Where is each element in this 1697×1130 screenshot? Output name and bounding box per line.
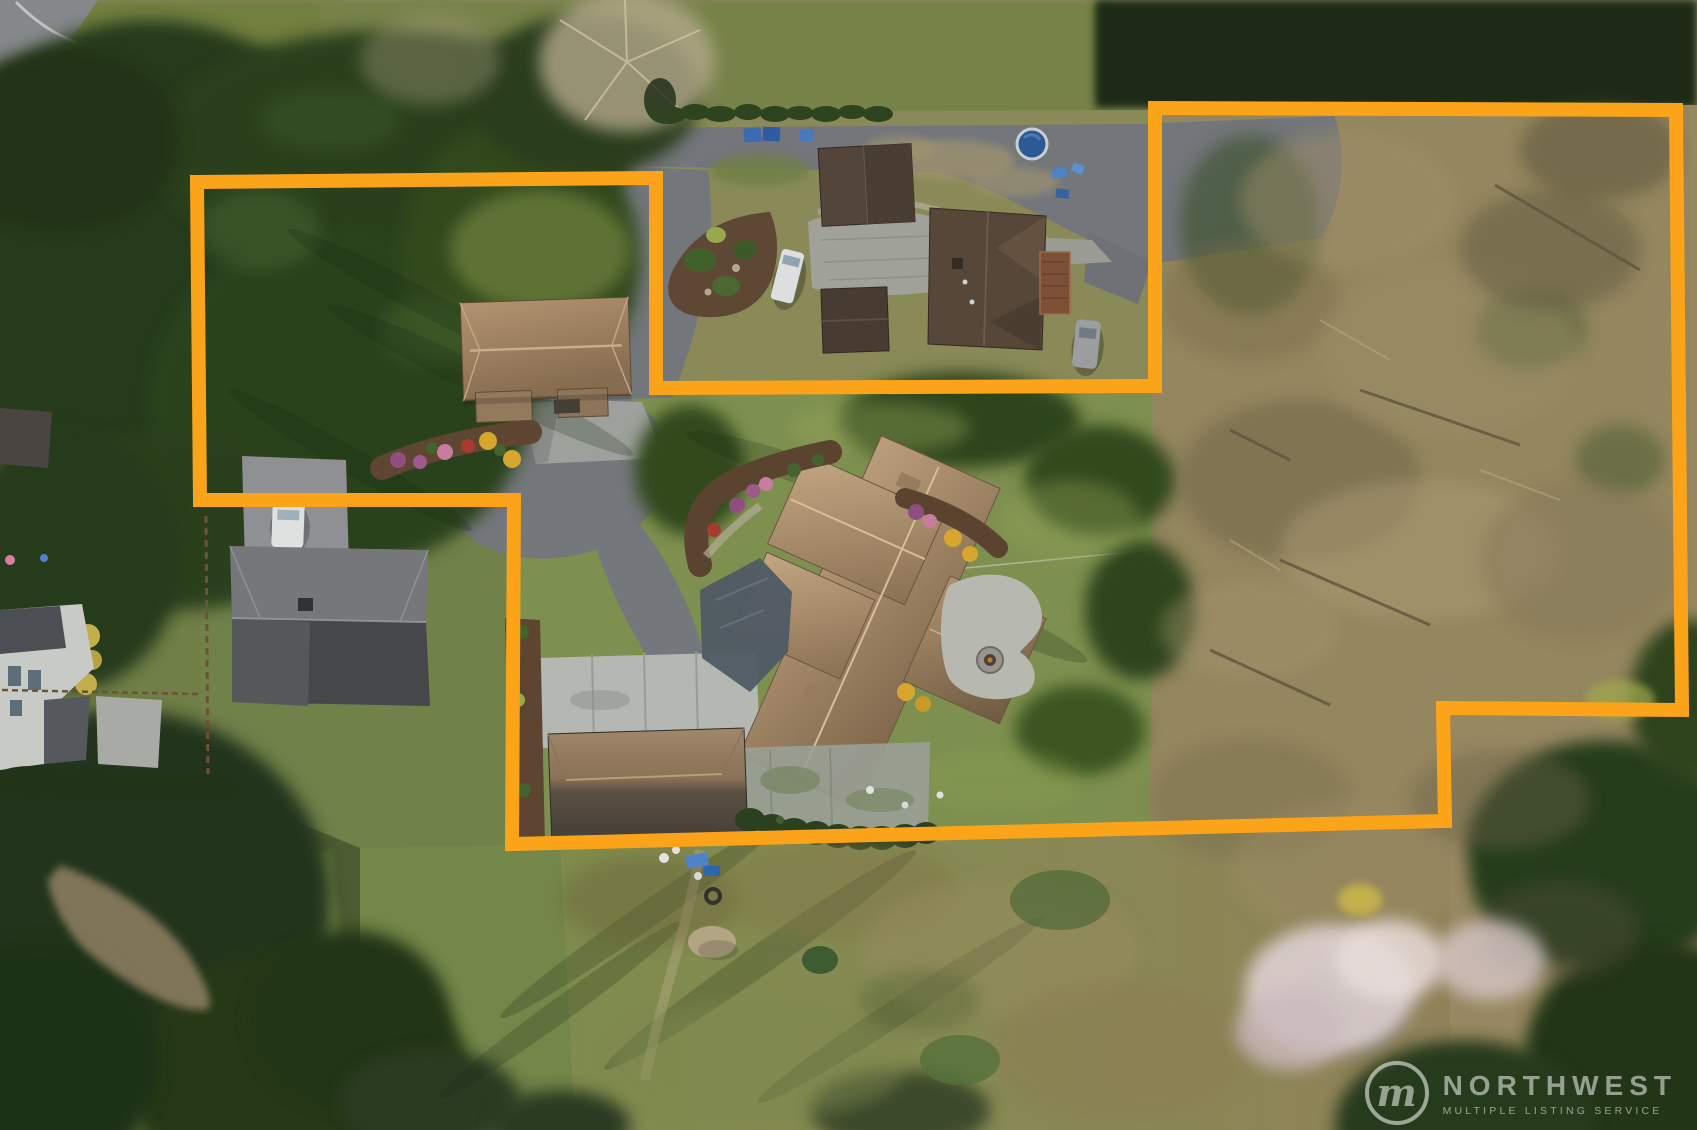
- mls-logo-icon: m: [1365, 1061, 1429, 1125]
- mls-watermark-text: NORTHWEST MULTIPLE LISTING SERVICE: [1443, 1070, 1677, 1117]
- wood-deck: [1040, 252, 1070, 314]
- neighbor-house: [928, 208, 1046, 350]
- mls-tagline: MULTIPLE LISTING SERVICE: [1443, 1105, 1677, 1117]
- roadside-shed: [0, 408, 52, 468]
- aerial-photo-canvas: [0, 0, 1697, 1130]
- carport: [818, 144, 915, 227]
- mls-watermark: m NORTHWEST MULTIPLE LISTING SERVICE: [1365, 1061, 1677, 1125]
- mls-logo-letter: m: [1376, 1074, 1416, 1112]
- back-patio: [941, 575, 1042, 700]
- garden-shed: [821, 287, 889, 353]
- aerial-photo: m NORTHWEST MULTIPLE LISTING SERVICE: [0, 0, 1697, 1130]
- gray-roof-house: [230, 546, 430, 706]
- fire-pit: [977, 647, 1003, 673]
- mls-brand-name: NORTHWEST: [1443, 1070, 1677, 1102]
- swimming-pool: [1017, 129, 1047, 159]
